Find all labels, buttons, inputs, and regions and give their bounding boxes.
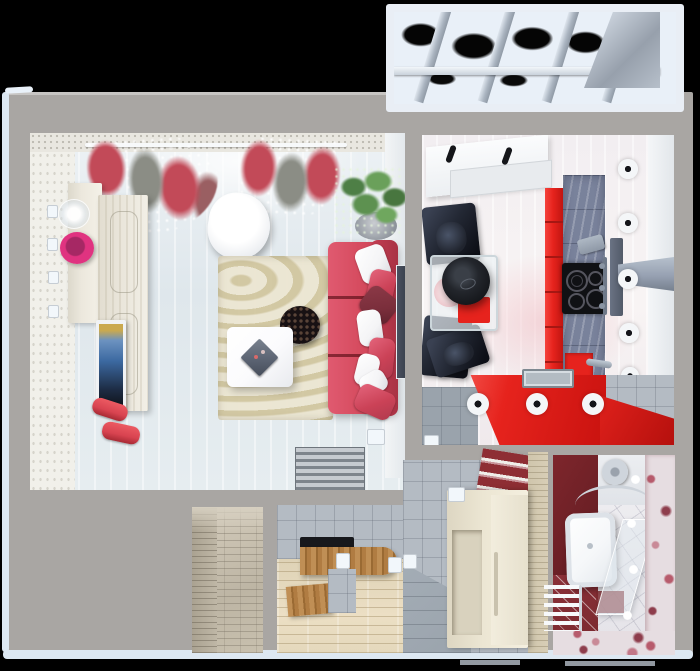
cabinet-shelf-inset [452, 530, 482, 635]
kitchen [422, 135, 674, 445]
bath-spotlight [631, 475, 640, 484]
cabinet-groove [110, 211, 138, 293]
tablet-button [261, 350, 265, 354]
shower-head [602, 459, 628, 485]
tablet-button [254, 355, 258, 359]
striped-doormat [295, 447, 365, 490]
wall-sconce [48, 271, 59, 284]
shoe-cabinet [447, 490, 528, 648]
edge-dash [460, 660, 520, 665]
wall-sconce [424, 435, 439, 445]
ceiling-spotlight [618, 213, 638, 233]
wall-sconce [47, 205, 58, 218]
wall-sconce [403, 554, 417, 569]
outer-edge-left [2, 92, 9, 652]
dark-wall-panel [396, 265, 405, 379]
red-sofa [328, 240, 405, 418]
ceiling-spotlight [618, 269, 638, 289]
balcony [386, 4, 684, 112]
red-cabinet-column [545, 188, 563, 380]
ceiling-spotlight [619, 323, 639, 343]
wall-sconce [448, 487, 465, 502]
burner [566, 270, 588, 292]
floral-tile-wall [645, 455, 675, 655]
chrome-knob [599, 303, 605, 309]
hallway-cabinet-zone [403, 460, 548, 653]
bath-spotlight [627, 519, 636, 528]
bath-spotlight [629, 565, 638, 574]
ceiling-spotlight [582, 393, 604, 415]
chrome-knob [599, 263, 605, 269]
wall-sconce [48, 305, 59, 318]
ceiling-spotlight [618, 159, 638, 179]
cabinet-handle [494, 552, 498, 616]
edge-dash [565, 661, 655, 666]
wall-sconce [388, 557, 402, 573]
ceiling-spotlight [526, 393, 548, 415]
floor-switch [367, 429, 385, 445]
ceiling-spotlight [467, 393, 489, 415]
bathtub-drain [587, 543, 593, 549]
floral-tile-border [553, 631, 675, 655]
chrome-knob [599, 285, 605, 291]
towel-radiator [544, 585, 582, 631]
wall-top-highlight [8, 92, 388, 95]
sink [522, 369, 574, 388]
bath-spotlight [623, 611, 632, 620]
tile-block [328, 569, 356, 613]
stone-wall-top [192, 507, 263, 531]
burner [588, 271, 603, 286]
wood-step-box [286, 583, 332, 617]
pink-vase [60, 232, 94, 264]
potted-plant [333, 166, 405, 244]
wall-sconce [336, 553, 350, 569]
wall-sconce [47, 238, 58, 251]
floorplan-render [0, 0, 700, 671]
bathroom [553, 455, 675, 655]
corridor [192, 507, 263, 653]
glass-vase [58, 199, 90, 229]
burner [568, 293, 585, 310]
plant-foliage [333, 166, 405, 236]
living-room [30, 133, 405, 490]
tv-screen [99, 324, 123, 406]
radiator-rail [579, 585, 582, 631]
hallway-entrance [277, 505, 403, 653]
